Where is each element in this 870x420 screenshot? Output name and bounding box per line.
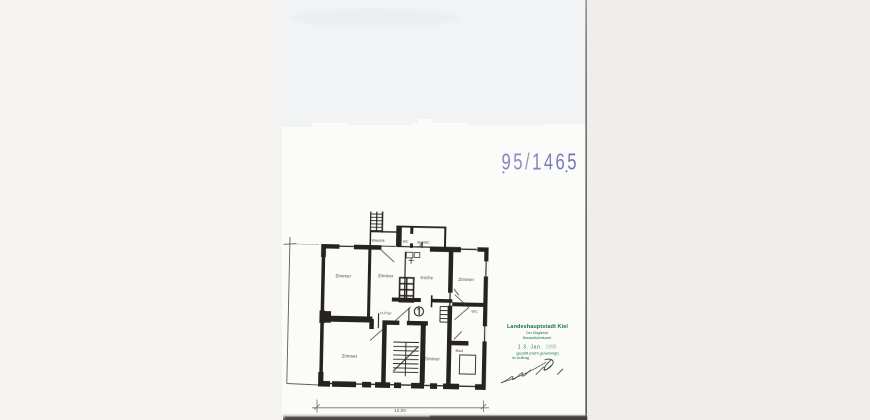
svg-text:1 3. Jan.: 1 3. Jan. [518, 345, 542, 351]
svg-text:geprüft (nicht genehmigt): geprüft (nicht genehmigt) [516, 351, 559, 355]
svg-text:Zimmer: Zimmer [458, 277, 474, 282]
svg-text:Küche: Küche [420, 275, 433, 280]
svg-text:WC: WC [403, 240, 409, 244]
svg-text:Landeshauptstadt Kiel: Landeshauptstadt Kiel [507, 324, 568, 330]
svg-text:Der Magistrat: Der Magistrat [526, 331, 548, 335]
svg-text:Zimmer: Zimmer [342, 353, 358, 358]
svg-text:1995: 1995 [545, 344, 556, 350]
svg-text:im Auftrag: im Auftrag [512, 356, 529, 360]
svg-text:WC: WC [471, 310, 478, 314]
svg-text:Zimmer: Zimmer [378, 273, 394, 278]
svg-text:Bauaufsichtsamt: Bauaufsichtsamt [523, 336, 552, 340]
svg-text:Bad/WC: Bad/WC [417, 240, 430, 244]
svg-text:Zimmer: Zimmer [335, 273, 351, 278]
svg-text:H.Flur: H.Flur [380, 311, 392, 315]
svg-text:Waschk.: Waschk. [372, 239, 386, 243]
svg-text:Zimmer: Zimmer [424, 356, 440, 361]
svg-text:12,00: 12,00 [394, 408, 406, 413]
svg-text:Bad: Bad [455, 348, 463, 353]
